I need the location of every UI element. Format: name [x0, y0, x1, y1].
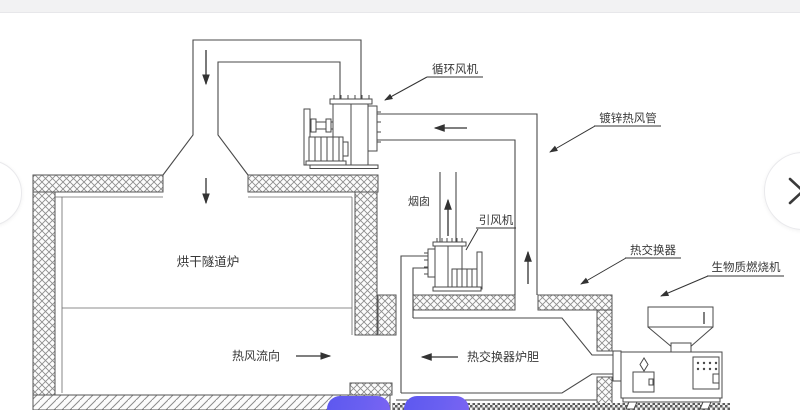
- furnace-inner-lining: [55, 197, 352, 393]
- label-heat-exchanger: 热交换器: [630, 243, 676, 257]
- label-biomass-burner: 生物质燃烧机: [712, 260, 781, 274]
- carousel-slide: 循环风机 镀锌热风管 烟囱 引风机 热交换器 生物质燃烧机 烘干隧道炉 热风流向…: [0, 0, 800, 410]
- label-galvanized-pipe: 镀锌热风管: [599, 111, 657, 125]
- circulation-fan: [304, 95, 381, 169]
- flue-pipes: [401, 256, 428, 393]
- label-circulation-fan: 循环风机: [432, 62, 478, 76]
- system-schematic: 循环风机 镀锌热风管 烟囱 引风机 热交换器 生物质燃烧机 烘干隧道炉 热风流向…: [0, 0, 800, 410]
- label-liner: 热交换器炉胆: [467, 349, 539, 364]
- chevron-right-icon: [786, 176, 800, 206]
- draft-fan: [424, 238, 482, 291]
- bottom-pill-button-1[interactable]: [327, 396, 390, 410]
- label-chimney: 烟囱: [408, 194, 430, 208]
- bottom-pill-button-2[interactable]: [404, 396, 469, 410]
- label-furnace: 烘干隧道炉: [177, 254, 240, 269]
- biomass-burner: [613, 307, 722, 409]
- label-draft-fan: 引风机: [479, 213, 514, 227]
- furnace-walls: [33, 175, 396, 395]
- label-hot-air-flow: 热风流向: [232, 348, 280, 363]
